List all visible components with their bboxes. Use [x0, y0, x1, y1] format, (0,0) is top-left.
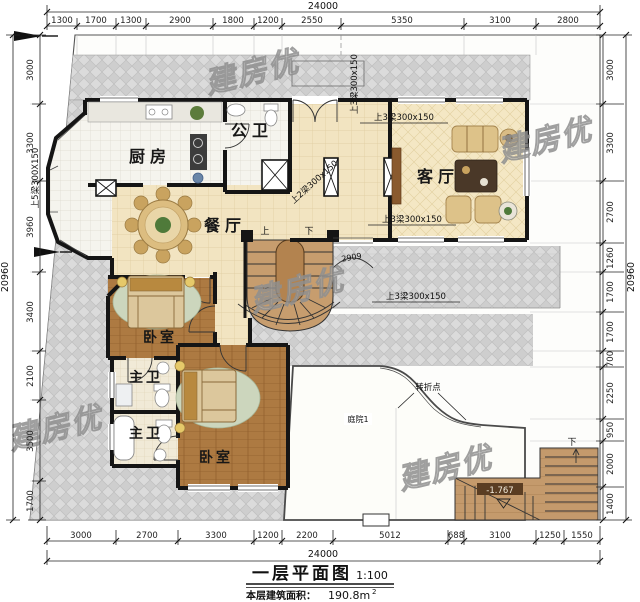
dim-bottom-6: 688 [448, 531, 464, 541]
label-living: 客厅 [417, 167, 459, 186]
dim-top-7: 5350 [391, 16, 413, 26]
label-dining: 餐厅 [203, 216, 246, 235]
dim-right-7: 2250 [606, 382, 616, 404]
stair-up-label: 上 [260, 226, 269, 237]
coffee-table [455, 160, 497, 192]
floor-plan-drawing: 厨房 公卫 客厅 餐厅 卧室 主卫 主卫 卧室 庭院1 上 下 下 上3梁300… [0, 0, 640, 602]
dim-bottom-4: 2200 [296, 531, 318, 541]
dim-right-5: 1700 [606, 321, 616, 343]
dim-top-3: 2900 [169, 16, 191, 26]
dim-bottom-0: 3000 [70, 531, 92, 541]
dim-top-5: 1200 [257, 16, 279, 26]
title-block: 一层平面图 1:100 本层建筑面积： 190.8m 2 [246, 564, 394, 602]
window-bedroom2-south-2 [238, 484, 278, 492]
drawing-title: 一层平面图 [252, 564, 352, 584]
dim-top-9: 2800 [557, 16, 579, 26]
kitchen-plant [190, 106, 204, 120]
window-living-north-1 [398, 96, 445, 104]
dim-right-6: 700 [606, 351, 616, 367]
dim-right-10: 1400 [606, 493, 616, 515]
label-bedroom1: 卧室 [143, 329, 177, 346]
dim-right-1: 3300 [606, 132, 616, 154]
label-kitchen: 厨房 [129, 147, 171, 166]
duct-shaft [262, 160, 288, 190]
dim-top-1: 1700 [85, 16, 107, 26]
dim-right-0: 3000 [606, 59, 616, 81]
dim-bottom-3: 1200 [257, 531, 279, 541]
drawing-scale: 1:100 [356, 569, 388, 582]
dim-top-4: 1800 [222, 16, 244, 26]
bedroom1-furniture [113, 275, 201, 329]
label-master-bath1: 主卫 [129, 369, 163, 386]
dim-right-9: 2000 [606, 453, 616, 475]
armchair-1 [446, 196, 471, 223]
armchair-2 [475, 196, 501, 223]
dim-left-6: 1700 [26, 490, 36, 512]
dim-bottom-7: 3100 [489, 531, 511, 541]
dim-bottom-overall: 24000 [308, 549, 338, 560]
area-superscript: 2 [372, 588, 376, 596]
window-living-north-2 [456, 96, 503, 104]
dim-right-overall: 20960 [626, 262, 637, 292]
dim-left-1: 3300 [26, 132, 36, 154]
dim-left-0: 3000 [26, 59, 36, 81]
toilet [155, 389, 169, 407]
dim-left-4: 2100 [26, 365, 36, 387]
ext-stair-down-label: 下 [567, 438, 576, 448]
window-living-south-2 [458, 236, 504, 244]
area-value: 190.8m [328, 589, 370, 602]
elevation-value: -1.767 [486, 486, 513, 496]
beam-label-h1: 上3梁300x150 [374, 113, 434, 123]
rear-gate [363, 514, 389, 526]
dim-top-0: 1300 [51, 16, 73, 26]
tv-cabinet [392, 148, 401, 204]
dim-top-2: 1300 [120, 16, 142, 26]
dim-right-3: 1260 [606, 247, 616, 269]
label-bedroom2: 卧室 [199, 449, 233, 466]
shower [116, 384, 132, 406]
dim-right-4: 1700 [606, 281, 616, 303]
dim-left-2: 3960 [26, 216, 36, 238]
beam-label-left-vertical: 上5梁300X150 [31, 148, 41, 209]
dining-table-set [125, 187, 201, 263]
dim-left-overall: 20960 [0, 262, 11, 292]
table-centerpiece [155, 217, 171, 233]
beam-label-h3: 上3梁300x150 [386, 292, 446, 302]
sink [227, 104, 245, 116]
dim-bottom-2: 3300 [205, 531, 227, 541]
window-living-south-1 [398, 236, 444, 244]
label-courtyard-group: 庭院1 [344, 413, 372, 425]
dim-left-5: 3500 [26, 430, 36, 452]
dim-left-3: 3400 [26, 301, 36, 323]
dim-bottom-1: 2700 [136, 531, 158, 541]
label-public-bath: 公卫 [231, 121, 273, 140]
kitchen-stove [190, 134, 207, 170]
floor-plan-page: 厨房 公卫 客厅 餐厅 卧室 主卫 主卫 卧室 庭院1 上 下 下 上3梁300… [0, 0, 640, 602]
dim-top-6: 2550 [301, 16, 323, 26]
dim-bottom-5: 5012 [379, 531, 401, 541]
dim-right-2: 2700 [606, 201, 616, 223]
beam-label-top-vertical: 上3梁300x150 [350, 54, 360, 114]
label-master-bath2: 主卫 [129, 425, 163, 442]
label-courtyard: 庭院1 [347, 414, 368, 424]
dim-right-8: 950 [606, 422, 616, 438]
sofa [452, 126, 498, 152]
window-bedroom2-south-1 [188, 484, 230, 492]
beam-label-h2: 上3梁300x150 [382, 215, 442, 225]
dim-top-overall: 24000 [308, 1, 338, 12]
stair-down-label: 下 [304, 227, 313, 237]
column-pier-3 [96, 180, 116, 196]
turning-point-label: 转折点 [415, 382, 441, 393]
area-label: 本层建筑面积： [246, 589, 316, 602]
dim-bottom-8: 1250 [539, 531, 561, 541]
dim-top-8: 3100 [489, 16, 511, 26]
sink [154, 449, 166, 461]
dim-bottom-9: 1550 [571, 531, 593, 541]
window-bath-west-1 [108, 372, 116, 398]
